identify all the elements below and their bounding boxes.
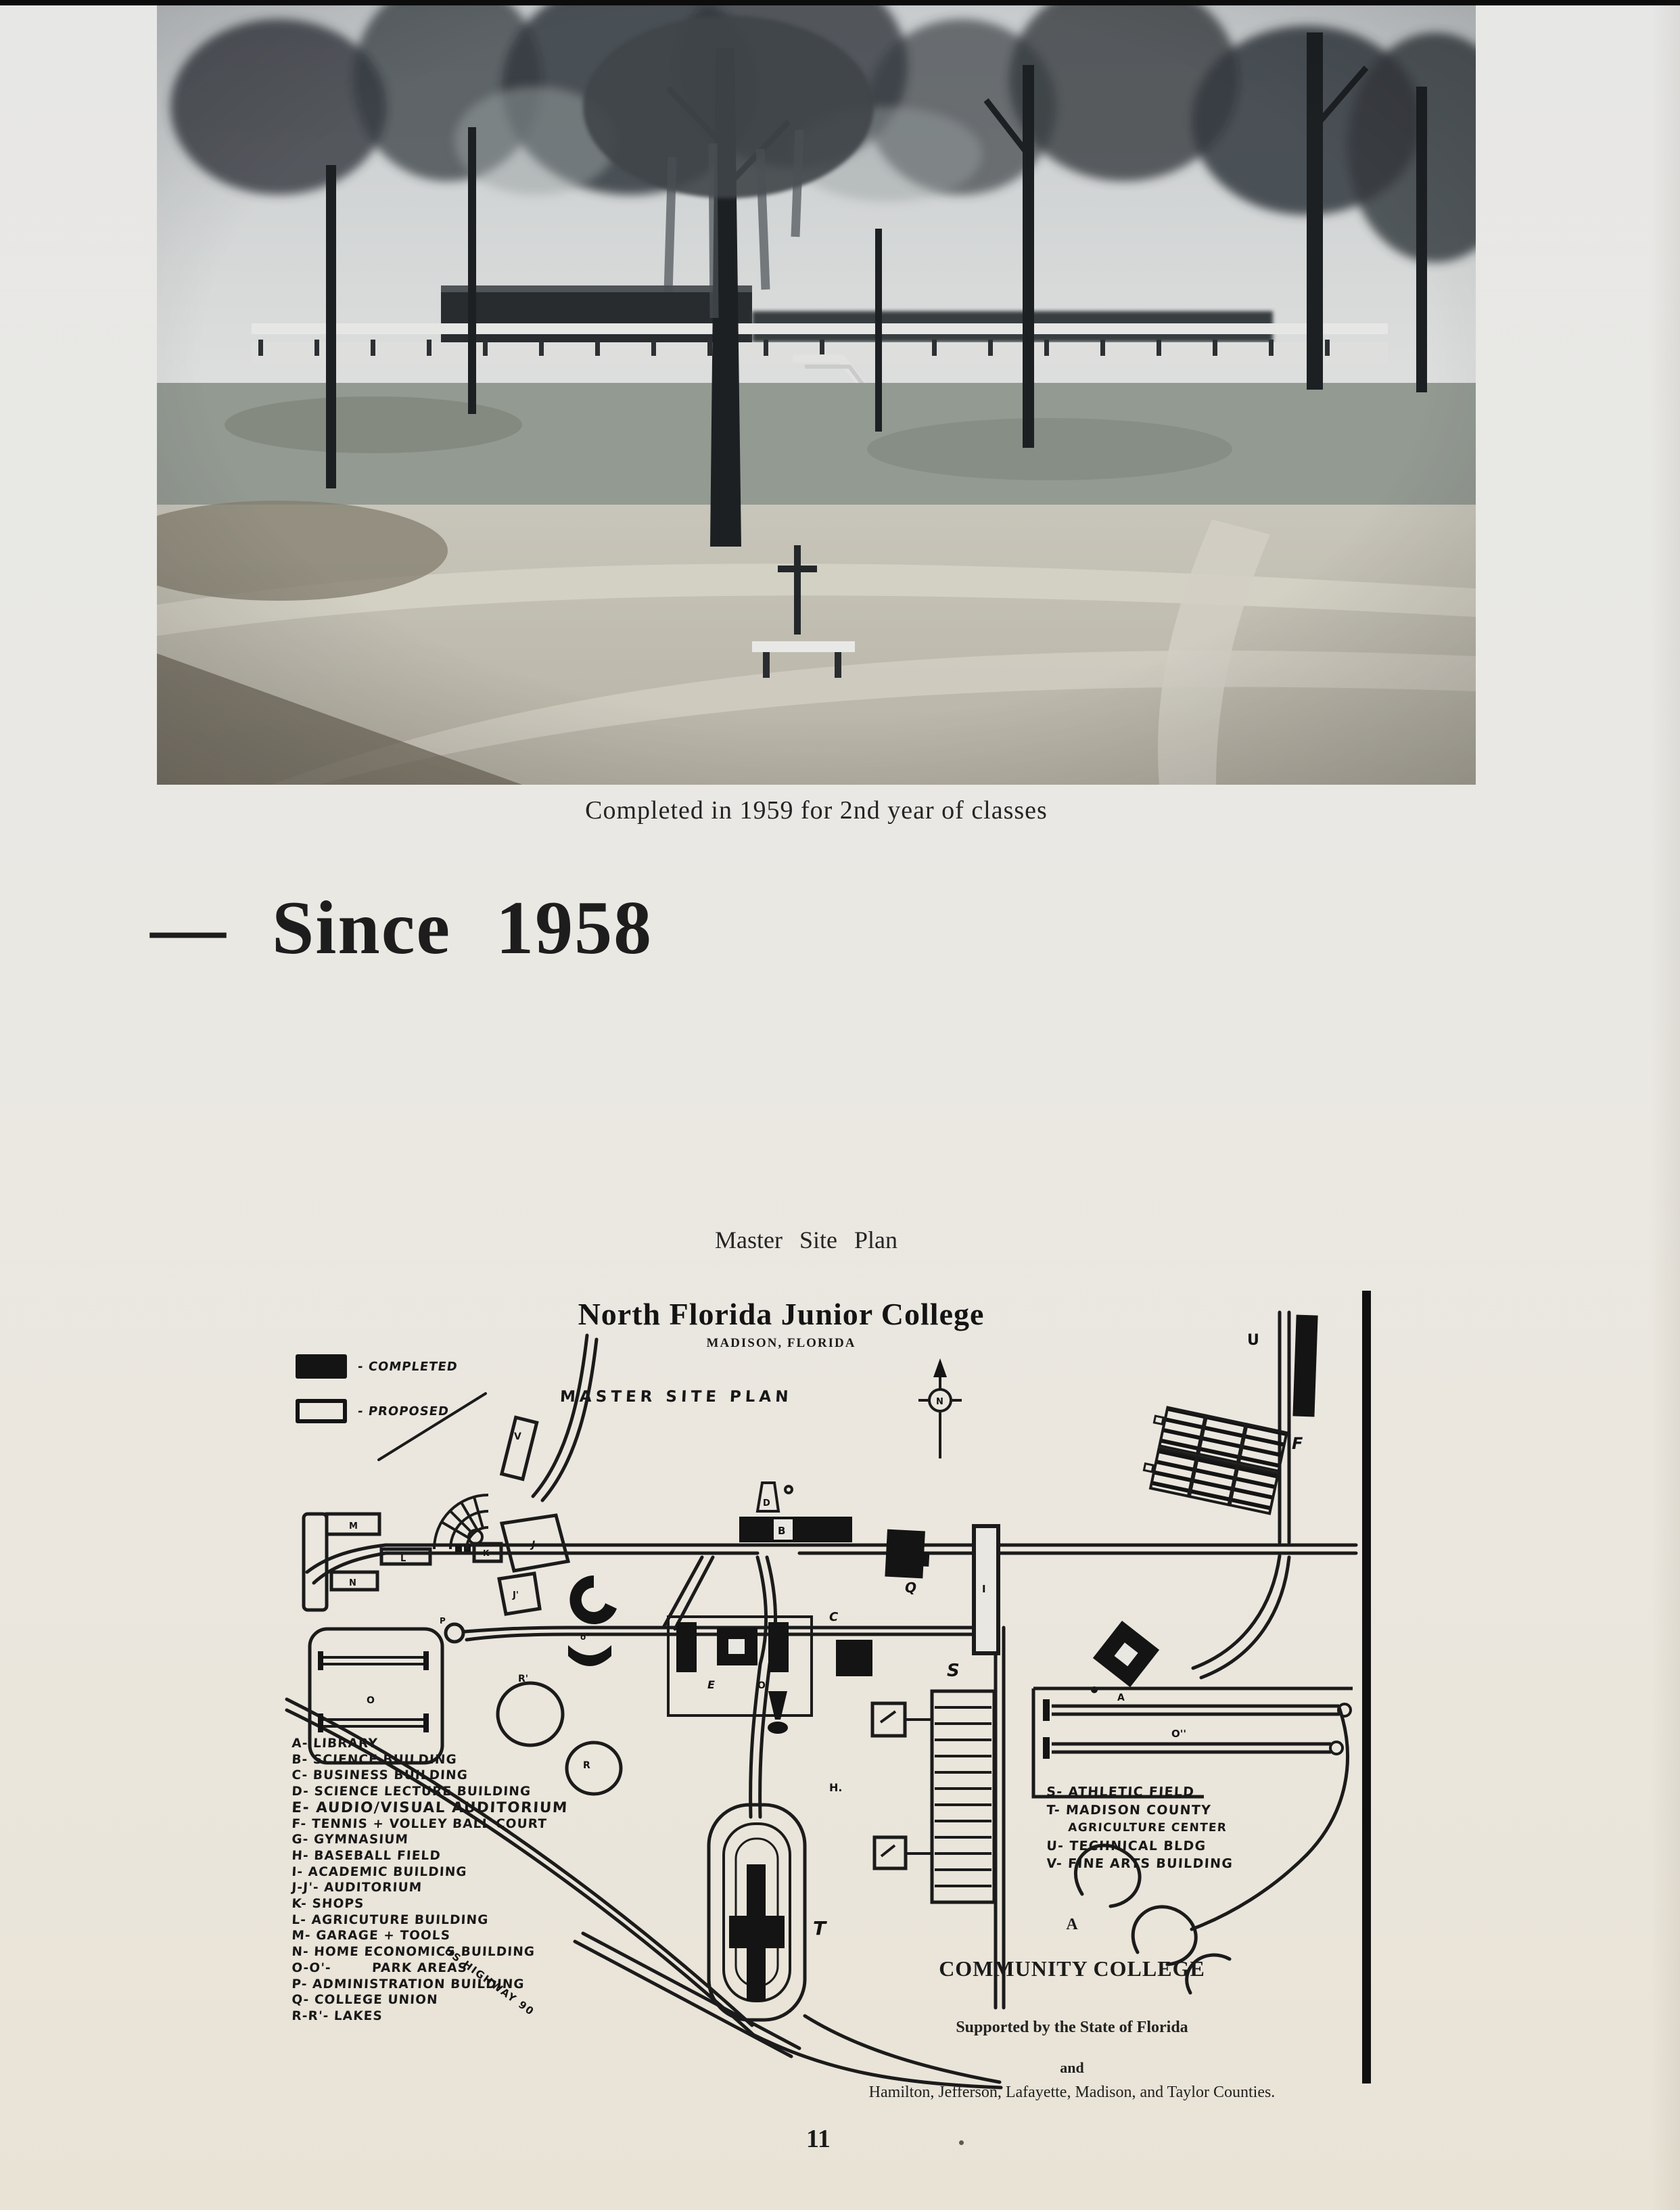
academic-building bbox=[974, 1526, 998, 1653]
legend-item: I- ACADEMIC BUILDING bbox=[291, 1864, 569, 1881]
roundabout bbox=[446, 1624, 463, 1642]
legend-item: E- AUDIO/VISUAL AUDITORIUM bbox=[291, 1800, 569, 1816]
label-p: P bbox=[440, 1616, 446, 1626]
science-building bbox=[739, 1517, 852, 1542]
gymnasium bbox=[568, 1575, 617, 1666]
legend-item: V- FINE ARTS BUILDING bbox=[1046, 1855, 1234, 1873]
speck bbox=[959, 2140, 964, 2145]
legend-item: U- TECHNICAL BLDG bbox=[1046, 1837, 1234, 1856]
label-d: D bbox=[763, 1498, 770, 1509]
athletic-field bbox=[932, 1691, 994, 1902]
legend-item: O-O'- PARK AREAS bbox=[291, 1960, 569, 1977]
compass-icon bbox=[918, 1358, 962, 1458]
footer-counties-line: Hamilton, Jefferson, Lafayette, Madison,… bbox=[785, 2084, 1359, 2102]
campus-photo bbox=[157, 5, 1476, 785]
page-heading: — Since 1958 bbox=[150, 885, 653, 972]
compass-n-label: N bbox=[936, 1397, 943, 1407]
campus-photo-art bbox=[157, 5, 1476, 785]
fine-arts-building bbox=[502, 1417, 537, 1479]
label-f: F bbox=[1292, 1434, 1303, 1453]
legend-item: L- AGRICUTURE BUILDING bbox=[291, 1912, 569, 1929]
legend-item: K- SHOPS bbox=[291, 1896, 569, 1912]
legend-item: N- HOME ECONOMICS BUILDING bbox=[291, 1944, 569, 1960]
label-h: H. bbox=[829, 1781, 842, 1794]
legend-item: C- BUSINESS BUILDING bbox=[291, 1768, 569, 1784]
label-r-prime: R' bbox=[518, 1674, 528, 1684]
label-k: K bbox=[483, 1548, 490, 1558]
label-g-mark: o° bbox=[580, 1632, 590, 1642]
legend-item: G- GYMNASIUM bbox=[291, 1832, 569, 1848]
legend-item: T- MADISON COUNTY bbox=[1046, 1801, 1234, 1820]
scan-edge-top bbox=[0, 0, 1680, 5]
label-r: R bbox=[583, 1760, 590, 1771]
legend-right: S- ATHLETIC FIELD T- MADISON COUNTY AGRI… bbox=[1047, 1783, 1234, 1873]
label-j-prime: J' bbox=[512, 1590, 519, 1601]
label-o-double: O'' bbox=[1171, 1728, 1186, 1740]
label-n: N bbox=[349, 1578, 356, 1588]
label-l: L bbox=[400, 1554, 406, 1564]
park-area-o-double bbox=[1033, 1688, 1353, 1797]
legend-item: B- SCIENCE BUILDING bbox=[291, 1752, 569, 1768]
label-c: C bbox=[829, 1610, 839, 1624]
legend-item: J-J'- AUDITORIUM bbox=[291, 1880, 569, 1896]
legend-item: Q- COLLEGE UNION bbox=[291, 1992, 569, 2008]
label-i: I bbox=[982, 1583, 986, 1595]
map-caption: Master Site Plan bbox=[468, 1226, 1144, 1254]
label-u: U bbox=[1247, 1332, 1259, 1349]
audio-visual-auditorium bbox=[668, 1617, 812, 1716]
label-q: Q bbox=[905, 1580, 916, 1596]
small-dot-structure bbox=[785, 1486, 792, 1493]
label-o-prime: O' bbox=[757, 1680, 768, 1691]
page-edge-shade bbox=[1650, 0, 1680, 2210]
college-union bbox=[885, 1529, 931, 1579]
page-number: 11 bbox=[806, 2124, 831, 2154]
yearbook-page: { "page": { "photo_caption": "Completed … bbox=[0, 0, 1680, 2210]
legend-item: H- BASEBALL FIELD bbox=[291, 1848, 569, 1864]
label-m: M bbox=[349, 1521, 358, 1532]
legend-item: P- ADMINISTRATION BUILDING bbox=[291, 1977, 569, 1993]
park-area-o-prime bbox=[768, 1691, 788, 1734]
technical-building bbox=[1292, 1314, 1317, 1417]
footer-a: A bbox=[805, 1916, 1339, 1934]
label-s: S bbox=[947, 1661, 960, 1681]
legend-item: F- TENNIS + VOLLEY BALL COURT bbox=[291, 1816, 569, 1833]
legend-item: AGRICULTURE CENTER bbox=[1046, 1819, 1234, 1837]
baseball-backstops bbox=[872, 1703, 932, 1868]
tennis-volleyball-courts bbox=[1140, 1405, 1286, 1513]
lake-r bbox=[567, 1743, 621, 1794]
label-o: O bbox=[367, 1695, 375, 1706]
legend-item: A- LIBRARY bbox=[291, 1736, 569, 1752]
agriculture-center bbox=[709, 1805, 805, 2020]
legend-item: D- SCIENCE LECTURE BUILDING bbox=[291, 1784, 569, 1800]
label-b: B bbox=[778, 1525, 785, 1537]
label-v: V bbox=[514, 1431, 521, 1442]
small-structure bbox=[455, 1545, 462, 1552]
footer-and: and bbox=[805, 2059, 1339, 2077]
footer-support-line: Supported by the State of Florida bbox=[805, 2019, 1339, 2037]
label-a: A bbox=[1117, 1693, 1125, 1703]
photo-caption: Completed in 1959 for 2nd year of classe… bbox=[157, 796, 1476, 825]
label-e: E bbox=[707, 1678, 715, 1691]
library bbox=[1093, 1621, 1159, 1687]
legend-left: A- LIBRARY B- SCIENCE BUILDING C- BUSINE… bbox=[292, 1736, 569, 2025]
business-building bbox=[836, 1640, 872, 1676]
legend-item: S- ATHLETIC FIELD bbox=[1046, 1783, 1234, 1801]
legend-item: R-R'- LAKES bbox=[291, 2008, 569, 2025]
legend-item: M- GARAGE + TOOLS bbox=[291, 1928, 569, 1944]
footer-college-name: COMMUNITY COLLEGE bbox=[805, 1956, 1339, 1981]
fan-parking bbox=[434, 1495, 488, 1549]
